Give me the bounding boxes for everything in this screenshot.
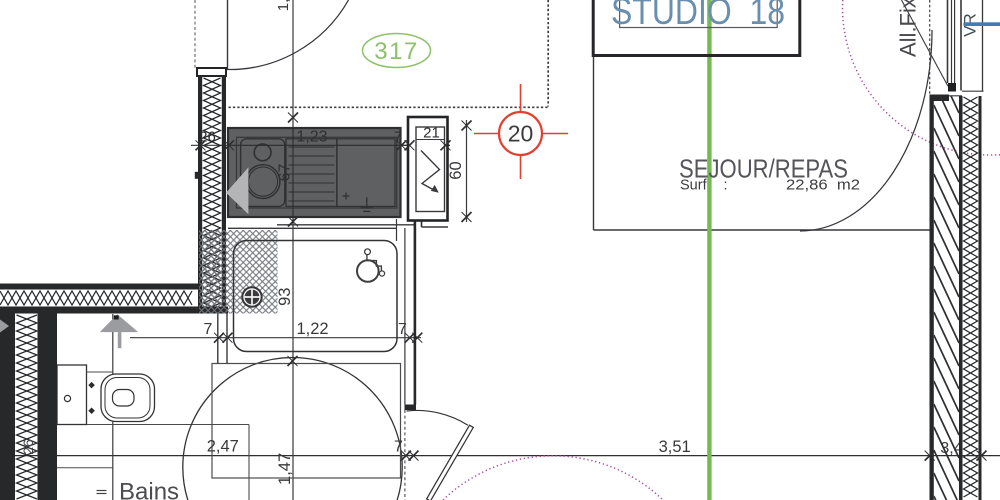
svg-text:1,23: 1,23 — [296, 129, 327, 146]
svg-text:7: 7 — [394, 439, 403, 456]
svg-text:60: 60 — [447, 161, 465, 179]
svg-text:26: 26 — [20, 439, 36, 455]
svg-text:3,51: 3,51 — [659, 438, 691, 456]
svg-text:2,47: 2,47 — [207, 438, 239, 456]
svg-text:20: 20 — [508, 121, 534, 147]
svg-text::: : — [724, 178, 728, 194]
svg-text:22,86 m2: 22,86 m2 — [786, 178, 860, 194]
svg-text:Bains: Bains — [119, 479, 179, 500]
svg-text:317: 317 — [374, 38, 419, 65]
svg-text:1,22: 1,22 — [296, 320, 328, 338]
svg-text:93: 93 — [276, 288, 294, 306]
svg-text:All.Fixe: All.Fixe — [896, 0, 921, 57]
svg-text:7: 7 — [398, 321, 407, 338]
svg-text:67: 67 — [277, 164, 294, 182]
svg-text:1,47: 1,47 — [276, 453, 294, 485]
svg-text:21: 21 — [423, 125, 440, 142]
svg-text:7: 7 — [394, 129, 402, 146]
svg-text:STUDIO 18: STUDIO 18 — [611, 0, 785, 32]
svg-text:1,: 1, — [275, 0, 292, 11]
svg-text:7: 7 — [204, 321, 213, 338]
svg-text:Surf: Surf — [680, 178, 708, 194]
